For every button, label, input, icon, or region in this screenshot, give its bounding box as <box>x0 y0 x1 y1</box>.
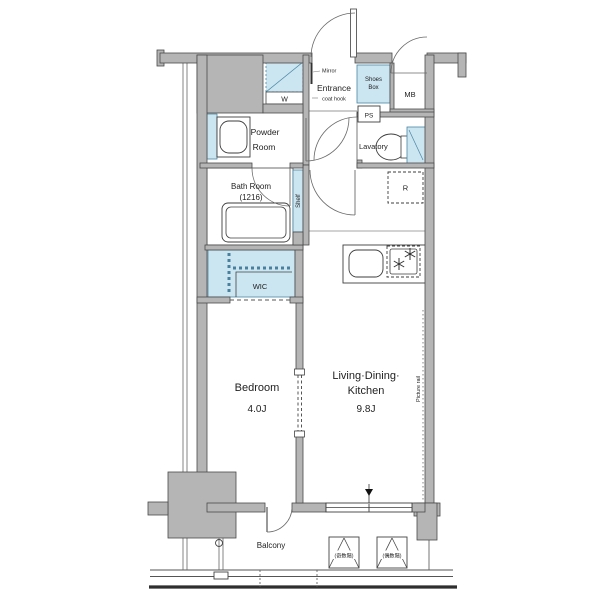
bathroom-label-1: Bath Room <box>231 182 271 191</box>
shelf-label: Shelf <box>296 194 302 208</box>
bathtub <box>222 203 290 242</box>
bedroom-size-label: 4.0J <box>248 404 267 415</box>
powder-room-label-1: Powder <box>251 127 280 137</box>
balcony-label: Balcony <box>257 541 285 550</box>
ldk-label-1: Living·Dining· <box>332 370 399 382</box>
hatch-even-label: (偶数階) <box>382 552 401 560</box>
wic-closet <box>208 250 295 297</box>
ldk-size-label: 9.8J <box>357 404 376 415</box>
bedroom-label: Bedroom <box>235 382 280 394</box>
powder-room-sink <box>207 114 250 159</box>
shoes-box-label-1: Shoes <box>365 77 382 83</box>
hatch-odd-label: (奇数階) <box>334 552 353 560</box>
shoes-box <box>357 65 390 103</box>
escape-hatch-even <box>377 537 407 568</box>
ps-label: PS <box>365 113 374 120</box>
coat-hook-label: coat hook <box>322 97 346 103</box>
shoes-box-label-2: Box <box>368 85 378 91</box>
mb-label: MB <box>404 90 415 99</box>
entrance-label: Entrance <box>317 83 351 93</box>
balcony-fitting <box>214 572 228 579</box>
mirror-label: Mirror <box>322 69 337 75</box>
refrigerator-label: R <box>403 184 409 193</box>
floor-plan-page: Mirror Entrance coat hook Shoes Box MB P… <box>0 0 600 600</box>
escape-hatch-odd <box>329 537 359 568</box>
floor-plan: Mirror Entrance coat hook Shoes Box MB P… <box>0 0 600 600</box>
washer-label: W <box>281 97 288 104</box>
lavatory-label: Lavatory <box>359 142 388 151</box>
powder-room-label-2: Room <box>253 142 276 152</box>
picture-rail-label: Picture rail <box>416 376 422 402</box>
kitchen-sink <box>349 250 383 277</box>
ldk-label-2: Kitchen <box>348 385 385 397</box>
kitchen-counter <box>343 245 427 283</box>
wic-label: WIC <box>253 282 268 291</box>
bathroom-label-2: (1216) <box>239 193 262 202</box>
